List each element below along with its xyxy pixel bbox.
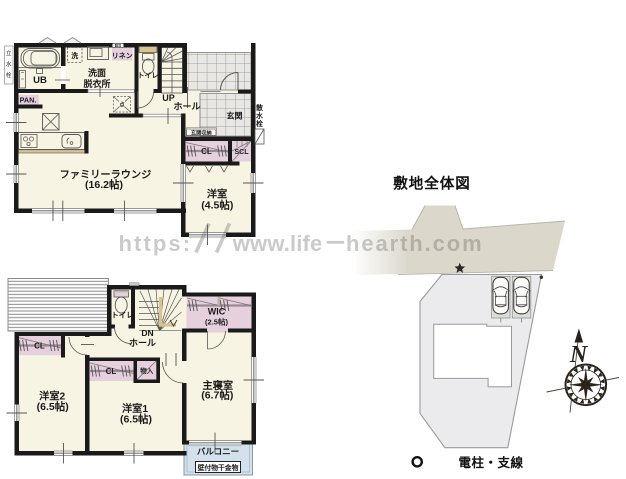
svg-text:(16.2帖): (16.2帖)	[85, 178, 123, 191]
svg-text:BS: BS	[115, 43, 121, 48]
svg-text:水: 水	[6, 60, 12, 68]
svg-text:(2.5帖): (2.5帖)	[205, 317, 228, 327]
svg-text:壁付物干金物: 壁付物干金物	[198, 463, 239, 472]
svg-text:点: 点	[119, 101, 125, 109]
svg-text:N: N	[569, 342, 589, 368]
svg-text:栓: 栓	[6, 71, 12, 79]
svg-text:玄関収納: 玄関収納	[191, 129, 212, 137]
svg-text:(6.5帖): (6.5帖)	[120, 413, 152, 426]
svg-text:SCL: SCL	[235, 149, 250, 156]
svg-text:ホール: ホール	[173, 102, 200, 112]
svg-text:(4.5帖): (4.5帖)	[201, 199, 233, 212]
svg-text:トイレ: トイレ	[138, 72, 159, 80]
svg-text:(6.5帖): (6.5帖)	[37, 400, 69, 413]
svg-text:電柱・支線: 電柱・支線	[458, 455, 523, 470]
svg-text:物入: 物入	[140, 366, 154, 375]
svg-text:CL: CL	[106, 367, 117, 376]
svg-text:洗面: 洗面	[88, 67, 106, 78]
svg-text:栓: 栓	[256, 119, 263, 128]
svg-text:リネン: リネン	[112, 52, 133, 60]
svg-text:CL: CL	[201, 147, 212, 156]
svg-text:洗: 洗	[71, 51, 78, 60]
svg-text:散: 散	[256, 103, 263, 112]
svg-text:トイレ: トイレ	[111, 311, 134, 320]
svg-text:立: 立	[6, 49, 12, 57]
svg-text:洋室: 洋室	[207, 187, 227, 200]
svg-text:DN: DN	[141, 328, 153, 338]
svg-text:www.life: www.life	[232, 231, 323, 256]
svg-text:UB: UB	[33, 75, 47, 86]
svg-text:CL: CL	[34, 342, 45, 351]
svg-text:https:: https:	[119, 231, 193, 256]
svg-text:バルコニー: バルコニー	[197, 447, 239, 457]
svg-text:ホール: ホール	[129, 338, 156, 348]
svg-text:(6.7帖): (6.7帖)	[201, 388, 233, 401]
svg-text:脱衣所: 脱衣所	[83, 78, 110, 89]
svg-text:WIC: WIC	[208, 307, 226, 317]
svg-text:水: 水	[256, 111, 264, 120]
svg-text:敷地全体図: 敷地全体図	[393, 175, 471, 193]
svg-text:hearth.com: hearth.com	[346, 231, 484, 256]
svg-text:PAN.: PAN.	[20, 96, 37, 105]
svg-text:玄関: 玄関	[227, 111, 243, 121]
